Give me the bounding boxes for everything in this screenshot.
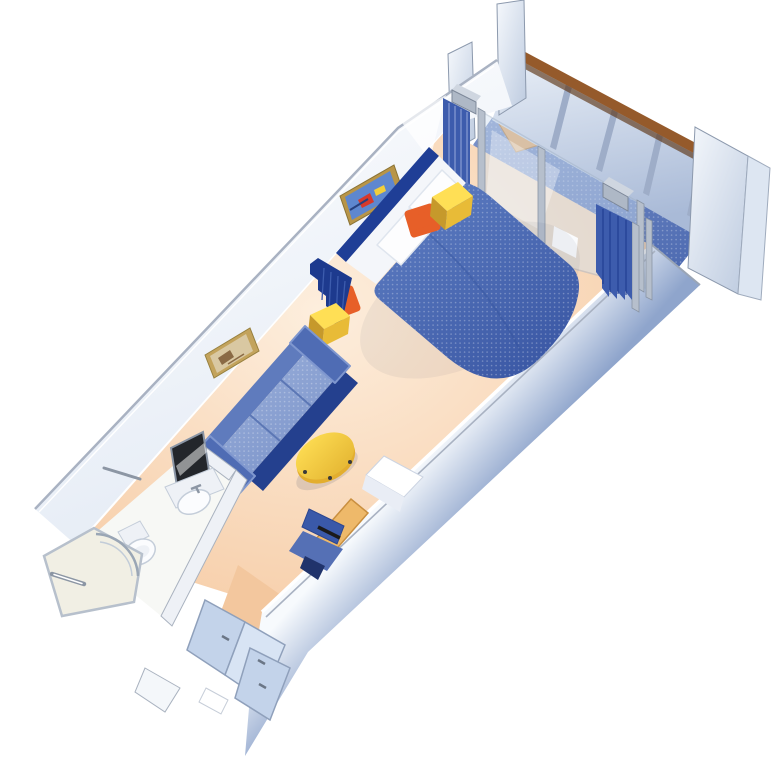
coffee-table-leg — [348, 460, 352, 464]
frame-post — [632, 222, 639, 312]
frame-post — [646, 218, 652, 300]
coffee-table-leg — [328, 476, 332, 480]
balcony-divider-right — [688, 127, 748, 294]
coffee-table-leg — [303, 470, 307, 474]
stateroom-floorplan — [0, 0, 783, 768]
